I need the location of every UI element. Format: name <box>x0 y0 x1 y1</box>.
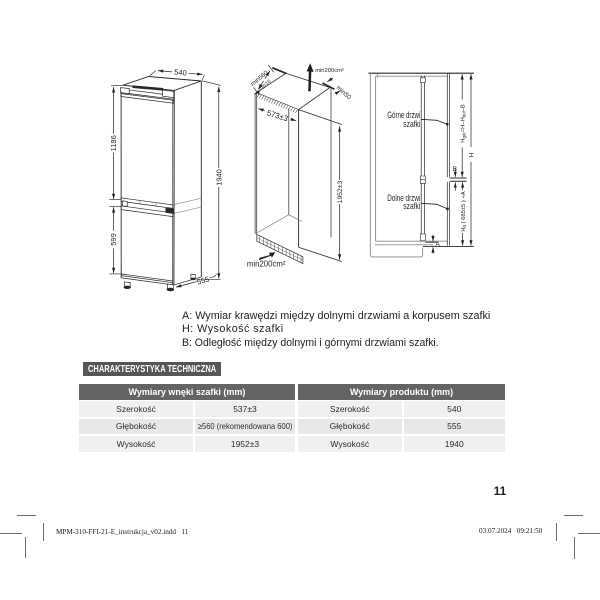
svg-text:1186: 1186 <box>109 135 118 151</box>
svg-text:B: B <box>453 166 457 173</box>
svg-text:555: 555 <box>196 274 211 286</box>
svg-text:min50: min50 <box>335 84 353 101</box>
svg-text:599: 599 <box>109 233 118 246</box>
svg-text:Hd ( 685±5 ) +A: Hd ( 685±5 ) +A <box>461 191 467 231</box>
svg-text:min200cm²: min200cm² <box>315 68 344 74</box>
svg-text:H: H <box>468 152 475 157</box>
svg-text:540: 540 <box>174 68 187 78</box>
svg-text:szafki: szafki <box>403 119 420 129</box>
svg-text:A: A <box>436 241 441 248</box>
svg-text:573±3: 573±3 <box>266 108 289 123</box>
svg-text:1940: 1940 <box>214 169 223 186</box>
svg-text:szafki: szafki <box>403 201 420 211</box>
svg-text:1952±3: 1952±3 <box>337 180 344 203</box>
svg-text:min200cm²: min200cm² <box>247 259 286 268</box>
svg-text:Hgór=H–Hdol–B: Hgór=H–Hdol–B <box>460 104 466 143</box>
